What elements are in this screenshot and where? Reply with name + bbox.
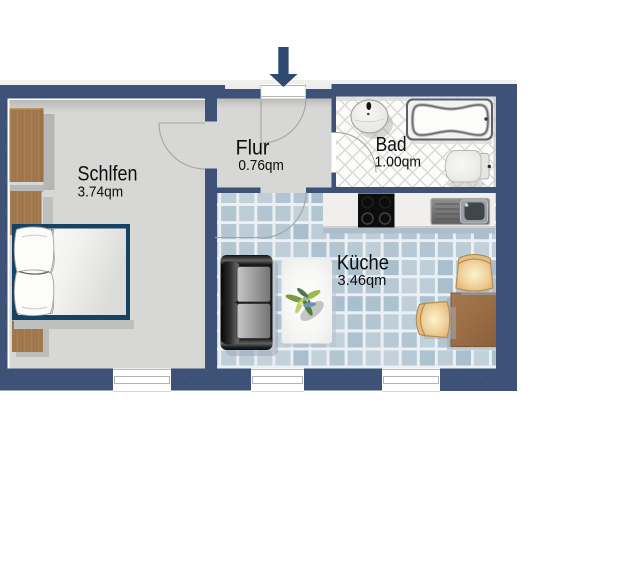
svg-text:1.00qm: 1.00qm xyxy=(375,154,422,171)
svg-text:Flur: Flur xyxy=(236,137,270,160)
svg-text:Schlfen: Schlfen xyxy=(78,163,138,186)
svg-text:3.74qm: 3.74qm xyxy=(78,183,124,200)
svg-text:Küche: Küche xyxy=(337,251,389,274)
svg-text:0.76qm: 0.76qm xyxy=(238,157,284,174)
svg-text:3.46qm: 3.46qm xyxy=(338,272,387,289)
